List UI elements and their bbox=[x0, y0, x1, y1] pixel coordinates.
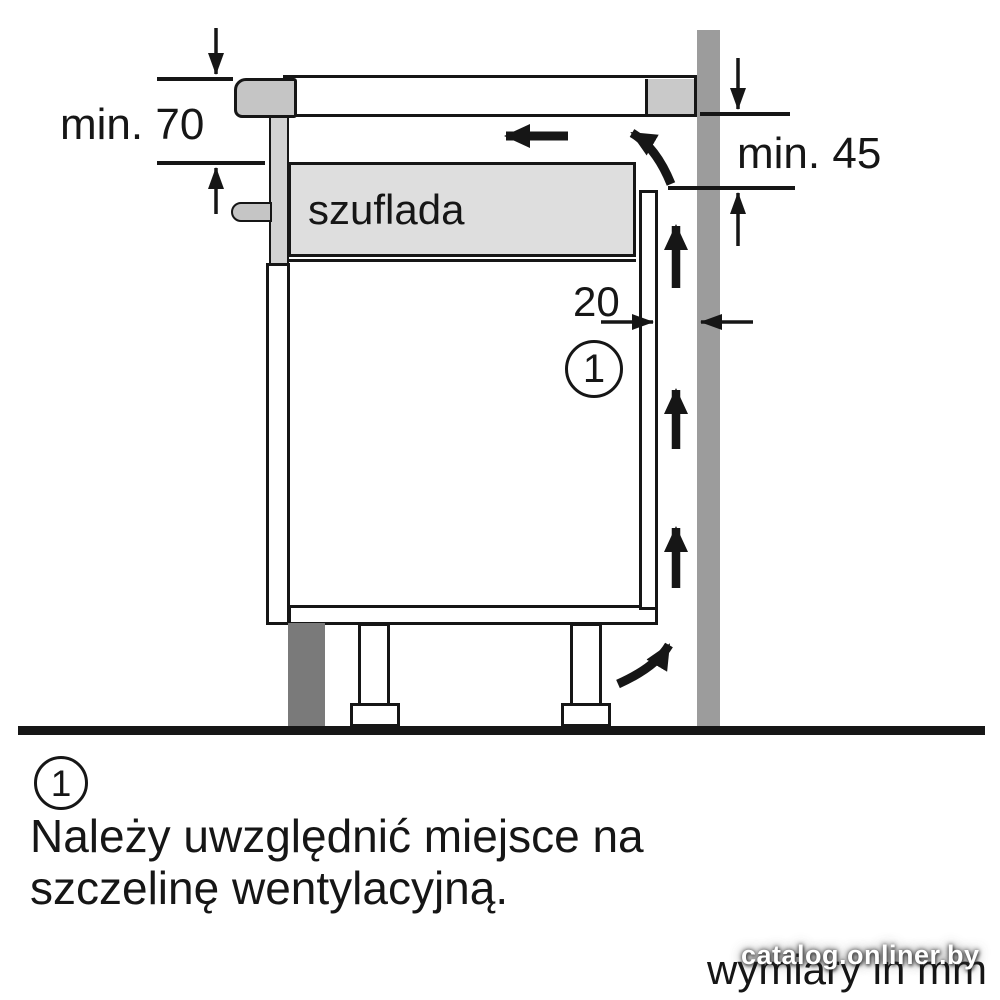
worktop-end-block bbox=[645, 79, 694, 114]
cabinet-leg-rear bbox=[570, 623, 602, 707]
hob-junction-knob bbox=[231, 202, 272, 222]
cabinet-bottom-shelf bbox=[288, 605, 658, 625]
cabinet-side-panel bbox=[266, 263, 290, 625]
cabinet-foot-rear bbox=[561, 703, 611, 727]
cabinet-leg-front bbox=[358, 623, 390, 707]
note-text-line-1: Należy uwzględnić miejsce na bbox=[30, 810, 644, 862]
note-marker-number: 1 bbox=[51, 765, 72, 802]
hob-front-trim bbox=[269, 116, 289, 265]
dim-line-min70-top bbox=[157, 77, 233, 81]
note-marker-circle: 1 bbox=[34, 756, 88, 810]
cabinet-rear-panel bbox=[639, 190, 658, 610]
plinth bbox=[288, 623, 325, 726]
dim-line-min70-bottom bbox=[157, 161, 265, 165]
installation-diagram-page: szuflada bbox=[0, 0, 1000, 1000]
drawer-label: szuflada bbox=[291, 186, 464, 234]
figure-callout-1-number: 1 bbox=[583, 349, 605, 389]
drawer-shelf-line bbox=[288, 259, 636, 262]
hob-front-edge bbox=[234, 78, 297, 118]
drawer-box: szuflada bbox=[288, 162, 636, 257]
dim-label-min70: min. 70 bbox=[60, 100, 204, 150]
dim-line-min45-bottom bbox=[668, 186, 795, 190]
airflow-curve-top-arrow-icon bbox=[632, 133, 671, 184]
cabinet-foot-front bbox=[350, 703, 400, 727]
dim-line-min45-top bbox=[700, 112, 790, 116]
floor-line bbox=[18, 726, 985, 735]
worktop bbox=[283, 75, 697, 117]
note-text-line-2: szczelinę wentylacyjną. bbox=[30, 862, 508, 914]
dim-label-gap20: 20 bbox=[573, 278, 620, 326]
wall bbox=[697, 30, 720, 726]
airflow-curve-bottom-arrow-icon bbox=[618, 645, 669, 684]
watermark-text: catalog.onliner.by bbox=[741, 940, 980, 971]
figure-callout-1: 1 bbox=[565, 340, 623, 398]
dim-label-min45: min. 45 bbox=[737, 129, 881, 179]
